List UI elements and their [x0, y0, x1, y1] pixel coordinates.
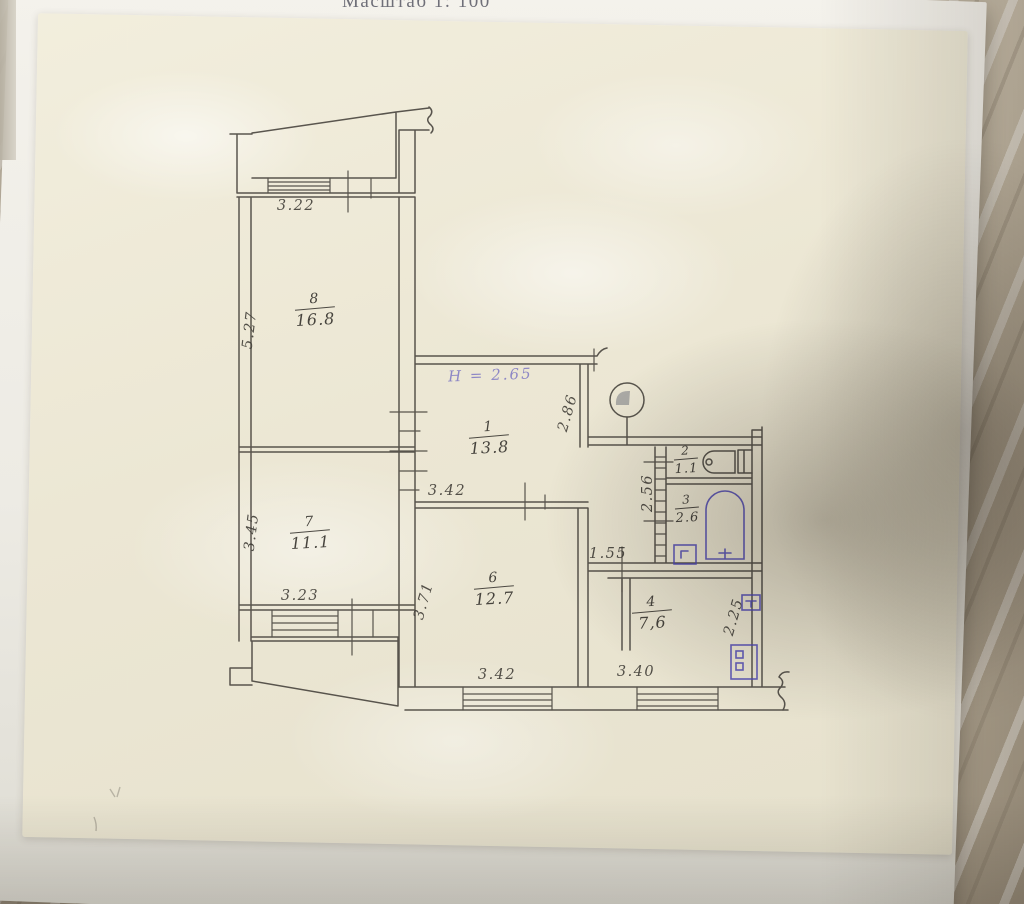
dim-bottom-window-right: 3.40: [617, 664, 655, 680]
stove-icon: [731, 645, 757, 679]
floor-plan-drawing: [0, 0, 1024, 904]
dim-room7-window: 3.23: [281, 588, 319, 604]
vent-circle-icon: [610, 383, 644, 417]
room-label-1: 1 13.8: [468, 419, 510, 457]
toilet-icon: [703, 450, 752, 473]
room-label-4: 4 7,6: [631, 594, 673, 632]
dim-room6-top: 3.42: [428, 483, 466, 499]
room-label-2: 2 1.1: [673, 444, 699, 476]
dim-bath-left: 2.56: [640, 474, 656, 512]
pencil-marks: [94, 787, 120, 831]
floorplan-photo: Масштаб 1: 100 Н = 2.65 8 16.8 7 11.1 1 …: [0, 0, 1024, 904]
dim-corridor: 1.55: [589, 546, 627, 562]
scale-caption: Масштаб 1: 100: [342, 0, 491, 13]
room-label-6: 6 12.7: [473, 570, 515, 608]
room-label-8: 8 16.8: [294, 291, 336, 329]
bathtub-icon: [706, 491, 744, 559]
room-label-3: 3 2.6: [674, 493, 700, 525]
dim-bottom-window-left: 3.42: [478, 667, 516, 683]
ceiling-height-note: Н = 2.65: [448, 365, 533, 386]
room-label-7: 7 11.1: [289, 514, 331, 552]
dim-top-window: 3.22: [277, 198, 315, 214]
bath-sink-icon: [674, 545, 696, 564]
